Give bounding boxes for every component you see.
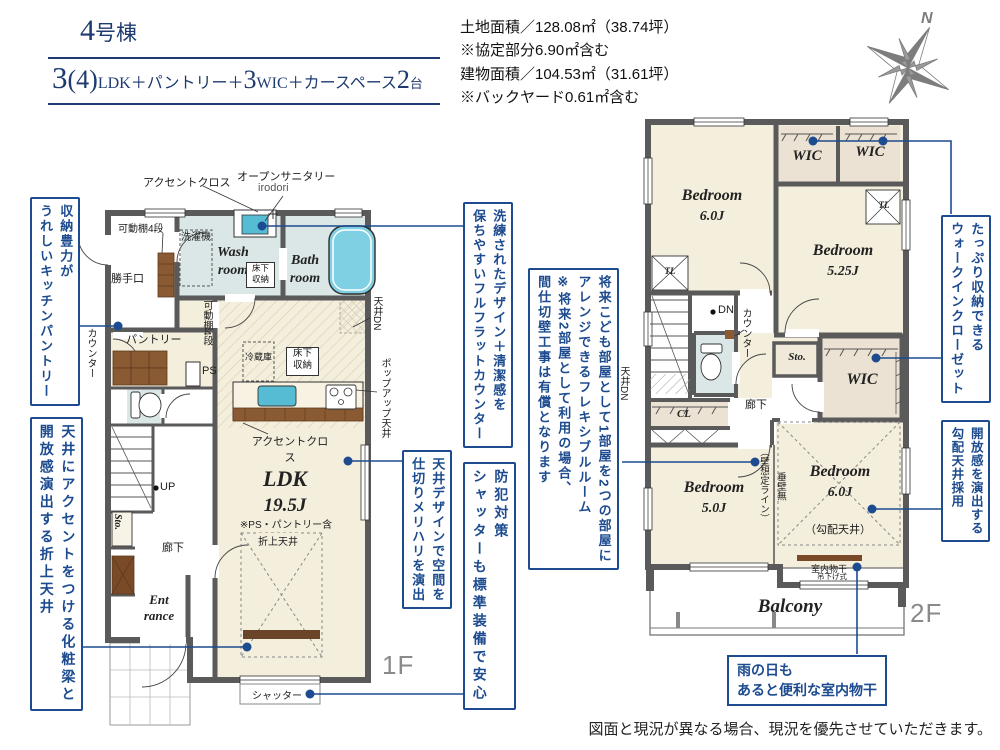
room-bed2-size: 5.25J <box>803 263 883 281</box>
label-ps: PS <box>202 365 217 377</box>
room-bed4-size: 6.0J <box>800 484 880 502</box>
label-movable-shelf-vertical: 可動棚4段 <box>199 300 214 346</box>
label-up: UP <box>160 481 175 493</box>
plan-type-line: 3 (4) LDK＋パントリー＋ 3 WIC＋カースペース 2 台 <box>52 60 423 96</box>
annotation-shutter: 防犯対策 シャッターも標準装備で安心 <box>463 462 516 710</box>
room-ldk: LDK <box>245 465 325 493</box>
label-ceiling-dn-1f: 天井DN <box>369 296 384 330</box>
annotation-slope-ceiling: 開放感を演出する 勾配天井採用 <box>941 420 990 542</box>
label-popup-ceiling: ポップアップ天井 <box>377 358 392 438</box>
page-title: 4号棟 <box>80 14 137 48</box>
room-entrance: Ent rance <box>134 592 184 625</box>
label-tsurisage: 吊下げ式 <box>817 571 847 582</box>
floorplan-flyer: 4号棟 3 (4) LDK＋パントリー＋ 3 WIC＋カースペース 2 台 土地… <box>0 0 1000 750</box>
label-hallway-1f: 廊下 <box>162 539 184 555</box>
room-bed3-size: 5.0J <box>674 500 754 518</box>
annotation-ceiling-design: 天井デザインで空間を 仕切りメリハリを演出 <box>402 450 452 609</box>
label-counter-1f: カウンター <box>83 328 98 378</box>
label-accent-cloth-top: アクセントクロス <box>143 174 230 190</box>
floor1-label: 1F <box>382 650 414 681</box>
room-bath: Bath room <box>282 252 328 287</box>
kitchen-counter <box>233 382 363 421</box>
room-wic3: WIC <box>838 370 886 390</box>
plan-ldk-count: 3 <box>52 60 68 96</box>
room-bed1-size: 6.0J <box>672 208 752 226</box>
label-accent-cloth-bottom: アクセントクロス <box>248 433 332 465</box>
compass-n-label: N <box>921 10 933 28</box>
label-oriage-ceiling: 折上天井 <box>256 533 300 548</box>
land-area-note: ※協定部分6.90㎡含む <box>460 39 678 62</box>
building-area-note: ※バックヤード0.61㎡含む <box>460 86 678 109</box>
room-wic1: WIC <box>783 147 831 166</box>
annotation-wic: たっぷり収納できる ウォークインクローゼット <box>941 215 991 403</box>
ceiling-beam <box>243 630 320 639</box>
label-fridge: 冷蔵庫 <box>245 350 272 363</box>
room-bed1: Bedroom <box>672 186 752 206</box>
label-washer: 洗濯機 <box>181 228 211 243</box>
label-storage-1f: Sto. <box>112 514 123 530</box>
annotation-fullflat-counter: 洗練されたデザイン＋清潔感を 保ちやすいフルフラットカウンター <box>463 202 513 448</box>
floor2-label: 2F <box>910 598 942 629</box>
unit-number: 4 <box>80 14 95 47</box>
label-slope-ceiling: （勾配天井） <box>805 521 871 537</box>
label-movable-shelf: 可動棚4段 <box>118 220 164 235</box>
label-underfloor-kitchen: 床下 収納 <box>286 347 319 376</box>
ps-shaft <box>186 362 200 386</box>
label-storage-2f: Sto. <box>780 351 814 365</box>
sanitary-counter <box>234 210 278 237</box>
label-dn: DN <box>718 304 734 316</box>
label-tarekabe: 垂壁無 <box>773 472 787 501</box>
room-wic2: WIC <box>846 143 894 162</box>
label-hallway-2f: 廊下 <box>745 396 767 412</box>
unit-suffix: 号棟 <box>95 21 137 45</box>
label-shutter: シャッター <box>252 687 302 702</box>
room-bed4: Bedroom <box>800 462 880 482</box>
label-irodori: irodori <box>258 182 289 194</box>
annotation-pantry: 収納豊力が うれしいキッチンパントリー <box>30 197 80 406</box>
label-cl: CL <box>672 408 696 422</box>
toilet-1f <box>131 392 161 418</box>
building-area: 建物面積／104.53㎡（31.61坪） <box>460 63 678 86</box>
label-underfloor-wash: 床下 収納 <box>246 262 275 288</box>
annotation-beam: 天井にアクセントをつける化粧梁と 開放感演出する折上天井 <box>30 417 83 711</box>
label-counter-2f: カウンター <box>738 308 753 358</box>
label-tl-1: TL <box>660 266 680 277</box>
label-wall-line: （壁想定ライン） <box>756 447 770 523</box>
room-ldk-note: ※PS・パントリー含 <box>238 516 334 531</box>
drying-bar <box>797 555 862 561</box>
entrance-porch <box>110 643 190 725</box>
label-pantry: パントリー <box>126 331 182 347</box>
land-area: 土地面積／128.08㎡（38.74坪） <box>460 16 678 39</box>
room-bed2: Bedroom <box>803 241 883 261</box>
title-rule-bottom <box>48 103 440 105</box>
room-bed3: Bedroom <box>674 478 754 498</box>
area-info: 土地面積／128.08㎡（38.74坪） ※協定部分6.90㎡含む 建物面積／1… <box>460 16 678 109</box>
annotation-indoor-drying: 雨の日も あると便利な室内物干 <box>727 655 887 706</box>
label-back-door: 勝手口 <box>111 270 144 286</box>
disclaimer: 図面と現況が異なる場合、現況を優先させていただきます。 <box>588 718 992 739</box>
room-ldk-size: 19.5J <box>245 494 325 518</box>
room-balcony: Balcony <box>750 595 830 619</box>
bathtub <box>329 226 375 294</box>
annotation-flexible-room: 将来こども部屋として1部屋を2つの部屋に アレンジできるフレキシブルルーム ※将… <box>528 268 619 570</box>
title-rule-top <box>48 57 440 59</box>
compass-icon <box>849 6 971 125</box>
label-tl-2: TL <box>874 200 894 211</box>
